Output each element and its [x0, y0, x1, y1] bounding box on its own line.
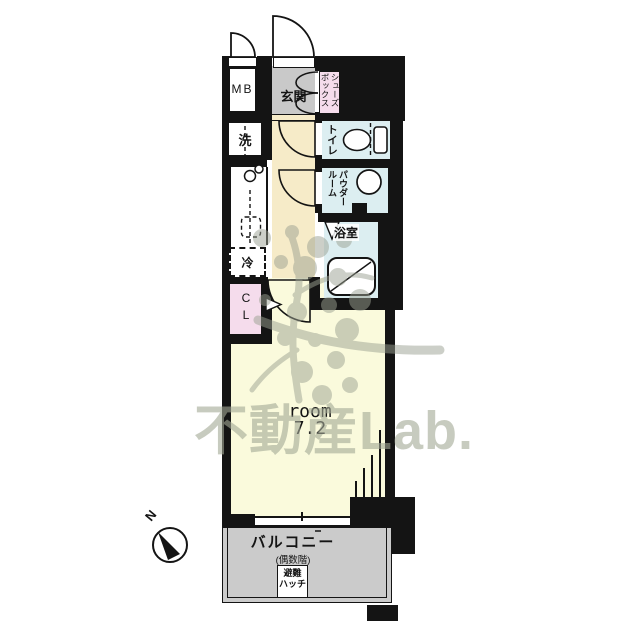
compass-icon: [153, 528, 187, 562]
balcony-label: バルコニー: [232, 531, 354, 552]
wall-below-bath: [310, 298, 403, 310]
wall-top-right-block: [340, 56, 405, 115]
wall-window-stub: [222, 514, 255, 528]
wall-top-pier: [257, 56, 272, 116]
wall-below-toilet: [318, 159, 403, 168]
kitchen-stove-icon: [242, 217, 261, 237]
wall-right-closet: [264, 281, 272, 337]
hatch-line2: ハッチ: [277, 579, 308, 590]
wall-right-bath: [378, 222, 403, 298]
window-room-balcony: [255, 516, 350, 527]
laundry-label: 洗: [227, 130, 263, 149]
shoebox-label: シューズ ボックス: [320, 73, 340, 113]
compass-north-label: N: [142, 507, 160, 524]
fridge-label: 冷: [229, 254, 266, 271]
hatch-line1: 避難: [277, 568, 308, 579]
entrance-label: 玄関: [272, 86, 315, 105]
entrance-door-arc: [273, 16, 314, 57]
hatch-label: 避難 ハッチ: [277, 568, 308, 590]
mb-door-arc: [231, 33, 255, 57]
entrance-door-opening: [273, 57, 315, 68]
pillar-bottom: [367, 605, 398, 621]
kitchen-sink-icon: [245, 171, 256, 182]
balcony-note: (偶数階): [252, 552, 334, 566]
closet-label: CL: [239, 291, 253, 331]
powder-door-gap: [315, 172, 322, 204]
watermark-brand: 不動産Lab.: [194, 386, 474, 465]
wall-laundry-hall: [262, 121, 272, 160]
bath-label: 浴室: [333, 224, 359, 241]
shoebox-label-col1: シューズ: [330, 73, 340, 113]
powder-label-col2: ルーム: [326, 170, 337, 214]
powder-label-col1: パウダー: [337, 170, 348, 214]
mb-label: MB: [227, 82, 258, 96]
wall-below-powder: [318, 213, 403, 222]
entrance-step: [272, 114, 315, 121]
floorplan-canvas: MB 玄関 シューズ ボックス 洗 トイレ パウダー ルーム 浴室 冷 CL r…: [0, 0, 640, 640]
shoebox-label-col2: ボックス: [320, 73, 330, 113]
kitchen-counter-edge: [266, 167, 268, 245]
wall-below-laundry: [222, 156, 267, 167]
toilet-label: トイレ: [325, 124, 340, 160]
powder-label: パウダー ルーム: [326, 170, 348, 214]
wall-powder-notch: [352, 203, 367, 213]
wall-right-powder: [388, 168, 403, 213]
hallway-floor: [272, 118, 315, 280]
toilet-door-gap: [315, 123, 322, 155]
wall-right-upper: [390, 121, 403, 160]
wall-roomdoor-pier: [308, 277, 320, 310]
